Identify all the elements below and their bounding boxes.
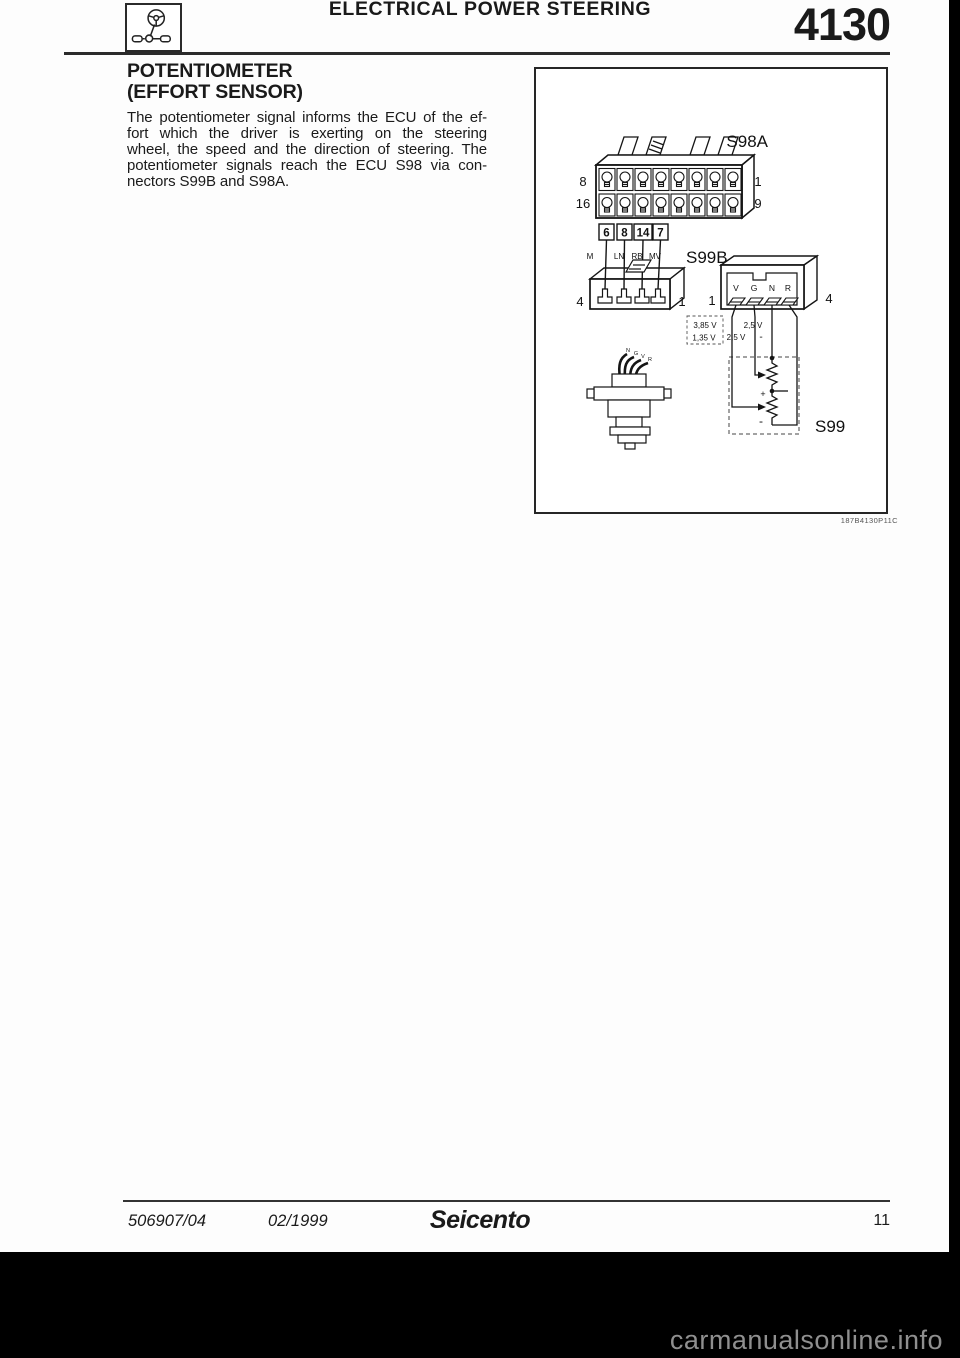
pin-box-14: 14 <box>637 228 650 240</box>
sensor-drawing <box>587 354 671 449</box>
s98a-pin-1: 1 <box>754 174 761 189</box>
s98a-pin-9: 9 <box>754 196 761 211</box>
paragraph-line: fort which the driver is exerting on the… <box>127 126 487 142</box>
s99-plus: + <box>760 389 765 399</box>
s99-minus: - <box>759 414 763 428</box>
footer-page-number: 11 <box>840 1212 890 1230</box>
voltage-1-35: 1,35 V <box>692 334 716 343</box>
s99-label: S99 <box>815 417 845 436</box>
article-heading-line2: (EFFORT SENSOR) <box>127 82 303 103</box>
scan-right-edge <box>949 0 960 1358</box>
mating-pin-1: 1 <box>708 293 715 308</box>
manual-page: ELECTRICAL POWER STEERING 4130 POTENTIOM… <box>0 0 960 1358</box>
header-rule <box>64 52 890 55</box>
paragraph-line: wheel, the speed and the direction of st… <box>127 142 487 158</box>
terminal-n: N <box>769 283 775 293</box>
pin-box-6: 6 <box>603 228 609 240</box>
article-heading-line1: POTENTIOMETER <box>127 61 303 82</box>
terminal-g: G <box>751 283 758 293</box>
wiring-diagram: S98A 8 16 1 9 6 8 14 7 <box>536 69 886 512</box>
footer-rule <box>123 1200 890 1202</box>
voltage-2-5-a: 2,5 V <box>744 321 763 330</box>
mating-pin-4: 4 <box>825 291 832 306</box>
scan-bottom-bar: carmanualsonline.info <box>0 1252 960 1358</box>
s99-circuit <box>732 305 797 425</box>
paragraph-line: potentiometer signals reach the ECU S98 … <box>127 158 487 174</box>
sensor-wire-n: N <box>626 348 630 354</box>
sensor-wire-v: V <box>641 354 645 360</box>
s99b-pin-1: 1 <box>678 294 685 309</box>
wire-label-m: M <box>587 252 594 261</box>
sensor-wire-g: G <box>634 351 638 357</box>
terminal-r: R <box>785 283 791 293</box>
section-number: 4130 <box>794 2 890 48</box>
paragraph-line: The potentiometer signal informs the ECU… <box>127 110 487 126</box>
article-paragraph: The potentiometer signal informs the ECU… <box>127 110 487 190</box>
figure-ref-code: 187B4130P11C <box>800 516 898 525</box>
s98a-label: S98A <box>726 132 768 151</box>
voltage-minus: - <box>759 332 762 343</box>
wiring-diagram-box: S98A 8 16 1 9 6 8 14 7 <box>534 67 888 514</box>
s98a-pin-16: 16 <box>576 196 590 211</box>
s98a-pin-8: 8 <box>579 174 586 189</box>
terminal-v: V <box>733 283 739 293</box>
voltage-3-85: 3,85 V <box>693 321 717 330</box>
paragraph-line: nectors S99B and S98A. <box>127 174 487 190</box>
wire-label-mv: MV <box>649 252 662 261</box>
watermark-text: carmanualsonline.info <box>670 1325 943 1356</box>
footer-model-name: Seicento <box>0 1206 960 1235</box>
s99b-pin-4: 4 <box>576 294 583 309</box>
voltage-2-5-b: 2,5 V <box>727 333 746 342</box>
wire-label-rb: RB <box>631 252 642 261</box>
article-heading: POTENTIOMETER (EFFORT SENSOR) <box>127 61 303 103</box>
pin-box-8: 8 <box>621 228 628 240</box>
sensor-wire-r: R <box>648 357 652 363</box>
wire-label-ln: LN <box>614 252 624 261</box>
pin-box-7: 7 <box>657 228 663 240</box>
page-title: ELECTRICAL POWER STEERING <box>160 0 820 21</box>
